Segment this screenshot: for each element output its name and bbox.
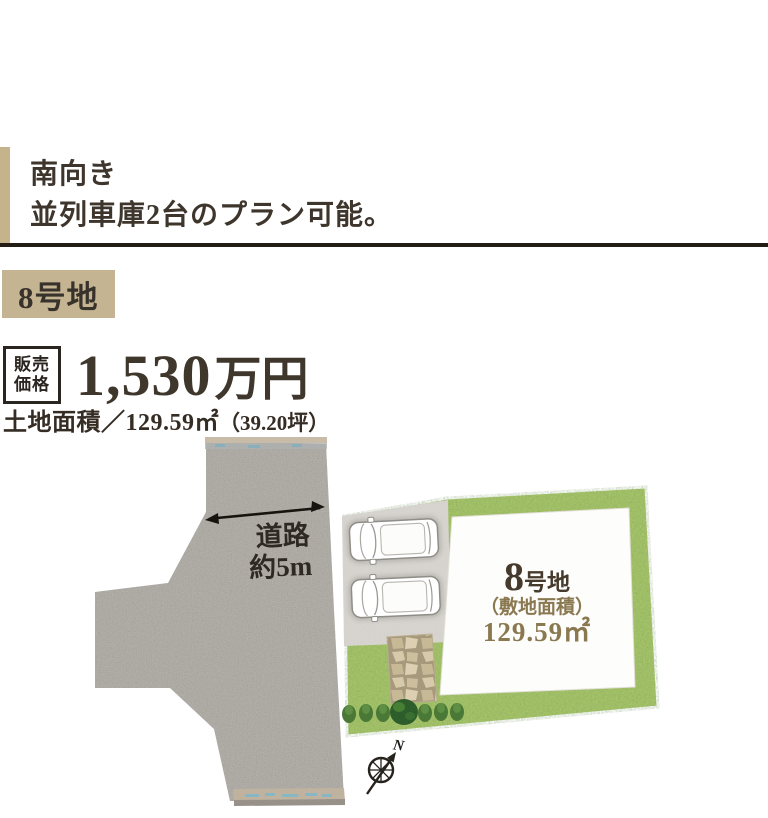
- headline-block: 南向き 並列車庫2台のプラン可能。: [0, 147, 768, 247]
- car-2: [348, 572, 444, 623]
- headline-line1: 南向き: [30, 154, 768, 195]
- car-1: [346, 514, 442, 566]
- bush-icon: [342, 705, 356, 723]
- bush-icon: [450, 703, 464, 721]
- lot-label-area: 129.59㎡: [483, 616, 591, 647]
- lot-number-badge: 8号地: [2, 270, 115, 318]
- bush-icon: [376, 704, 390, 722]
- road-label-line2: 約5m: [249, 550, 314, 583]
- land-area-tsubo: （39.20坪）: [219, 411, 329, 435]
- lot-number-badge-label: 8号地: [18, 272, 99, 317]
- price-block: 販売 価格 1,530 万円: [3, 340, 309, 409]
- bush-icon: [359, 704, 373, 722]
- flyer-page: 道路 約5m 8号地 （敷地面積） 129.59㎡ N 南向き 並列車庫2台のプ…: [0, 0, 768, 818]
- lot-label-caption: （敷地面積）: [480, 595, 594, 618]
- price-label-bottom: 価格: [14, 375, 50, 395]
- price-label-top: 販売: [14, 355, 50, 375]
- road-label-line1: 道路: [255, 519, 311, 552]
- road-top-edge: [205, 437, 327, 449]
- price-value: 1,530: [76, 349, 212, 403]
- bush-icon: [418, 704, 432, 722]
- road-area: [95, 440, 344, 801]
- compass-north-label: N: [391, 737, 406, 755]
- land-area-line: 土地面積／129.59㎡（39.20坪）: [3, 402, 329, 437]
- land-area-main: 土地面積／129.59㎡: [3, 410, 219, 436]
- road-bottom-edge: [233, 788, 345, 806]
- compass-icon: N: [367, 737, 406, 794]
- bush-icon: [434, 703, 448, 721]
- tree-icon: [390, 699, 418, 725]
- stone-path: [387, 634, 437, 704]
- headline-line2: 並列車庫2台のプラン可能。: [30, 195, 768, 236]
- headline-accent-bar: [0, 147, 10, 243]
- price-amount: 1,530 万円: [76, 340, 309, 409]
- price-label-box: 販売 価格: [3, 346, 61, 404]
- price-unit: 万円: [215, 340, 309, 409]
